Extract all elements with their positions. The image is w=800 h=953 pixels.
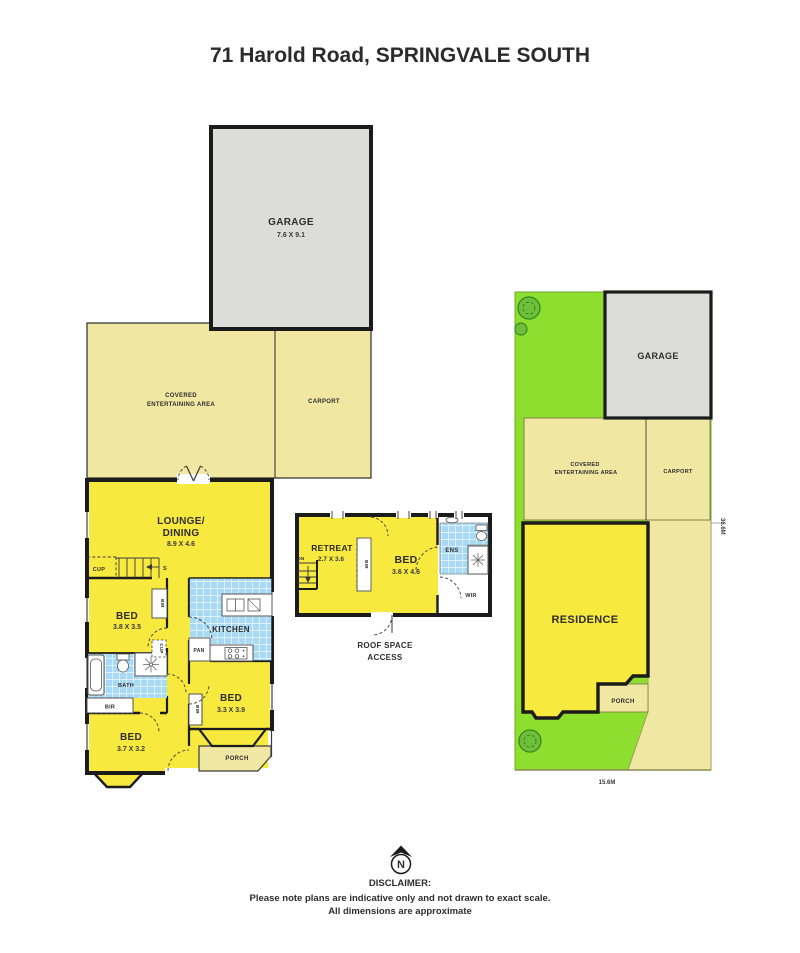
bay-window-bed2: [199, 729, 266, 746]
kitchen: PAN KITCHEN: [189, 579, 272, 661]
stairs-up-label: S: [163, 566, 167, 572]
north-label: N: [397, 859, 405, 871]
bed2-dims: 3.3 X 3.9: [217, 707, 245, 714]
disclaimer: DISCLAIMER: Please note plans are indica…: [250, 878, 551, 917]
covered-area-label-1: COVERED: [165, 393, 197, 399]
covered-area-carport: COVERED ENTERTAINING AREA CARPORT: [87, 323, 371, 478]
cup-bath-label: CUP: [159, 643, 164, 653]
wir-label: WIR: [465, 593, 477, 599]
bir2-label: BIR: [105, 705, 115, 711]
retreat-dims: 2.7 X 3.6: [318, 556, 344, 563]
lounge-label-1: LOUNGE/: [157, 516, 205, 527]
bed-ff-label: BED: [394, 554, 417, 566]
page-title: 71 Harold Road, SPRINGVALE SOUTH: [210, 44, 590, 67]
bir1-label: BIR: [160, 599, 165, 608]
kitchen-label: KITCHEN: [212, 625, 250, 634]
bed2-label: BED: [220, 693, 242, 704]
bush-icon-2: [519, 730, 541, 752]
site-garage-label: GARAGE: [637, 351, 678, 361]
bed1-label: BED: [116, 611, 138, 622]
bed3: BED 3.7 X 3.2: [117, 732, 145, 753]
dn-label: DN: [297, 556, 304, 561]
bed3-label: BED: [120, 732, 142, 743]
roof-space-caption-2: ACCESS: [367, 653, 403, 662]
site-covered-label-2: ENTERTAINING AREA: [555, 470, 618, 476]
shower-icon: [471, 553, 485, 567]
ground-floor-plan: COVERED ENTERTAINING AREA CARPORT GARAGE…: [85, 127, 371, 787]
first-floor-plan: ENS WIR BIR DN RETREAT 2.7 X 3.6 BED 3.6…: [297, 511, 490, 662]
compass: N: [390, 846, 412, 874]
disclaimer-heading: DISCLAIMER:: [369, 878, 431, 889]
garage: GARAGE 7.6 X 9.1: [211, 127, 371, 329]
site-depth-dim: 36.6M: [719, 518, 725, 535]
site-porch-label: PORCH: [611, 699, 634, 705]
site-frontage-dim: 15.6M: [599, 780, 616, 786]
site-porch: [598, 684, 648, 712]
disclaimer-line2: All dimensions are approximate: [328, 906, 472, 917]
site-covered-label-1: COVERED: [570, 462, 599, 468]
site-plan: GARAGE COVERED ENTERTAINING AREA CARPORT…: [515, 292, 725, 786]
bed3-dims: 3.7 X 3.2: [117, 746, 145, 753]
pantry-label: PAN: [193, 648, 204, 654]
ens-label: ENS: [445, 548, 458, 554]
bir-ff-label: BIR: [364, 560, 369, 569]
floor-plan-page: 71 Harold Road, SPRINGVALE SOUTH COVERED…: [0, 0, 800, 953]
disclaimer-line1: Please note plans are indicative only an…: [250, 893, 551, 904]
retreat-label: RETREAT: [311, 543, 353, 553]
bed1-dims: 3.8 X 3.5: [113, 624, 141, 631]
garage-label: GARAGE: [268, 217, 314, 228]
roof-space-caption-1: ROOF SPACE: [357, 641, 413, 650]
lounge-label-2: DINING: [163, 528, 200, 539]
carport-label: CARPORT: [308, 399, 340, 405]
porch-label: PORCH: [225, 756, 248, 762]
garage-dims: 7.6 X 9.1: [277, 232, 305, 239]
bed-ff-dims: 3.6 X 4.6: [392, 569, 420, 576]
residence-label: RESIDENCE: [552, 614, 619, 626]
floor-plan-canvas: 71 Harold Road, SPRINGVALE SOUTH COVERED…: [0, 0, 800, 953]
covered-area-label-2: ENTERTAINING AREA: [147, 402, 215, 408]
cup-hall-label: CUP: [93, 567, 106, 573]
lounge-dims: 8.9 X 4.6: [167, 541, 195, 548]
site-carport-label: CARPORT: [663, 469, 693, 475]
bath-label: BATH: [118, 683, 134, 689]
bir3-label: BIR: [195, 705, 200, 714]
